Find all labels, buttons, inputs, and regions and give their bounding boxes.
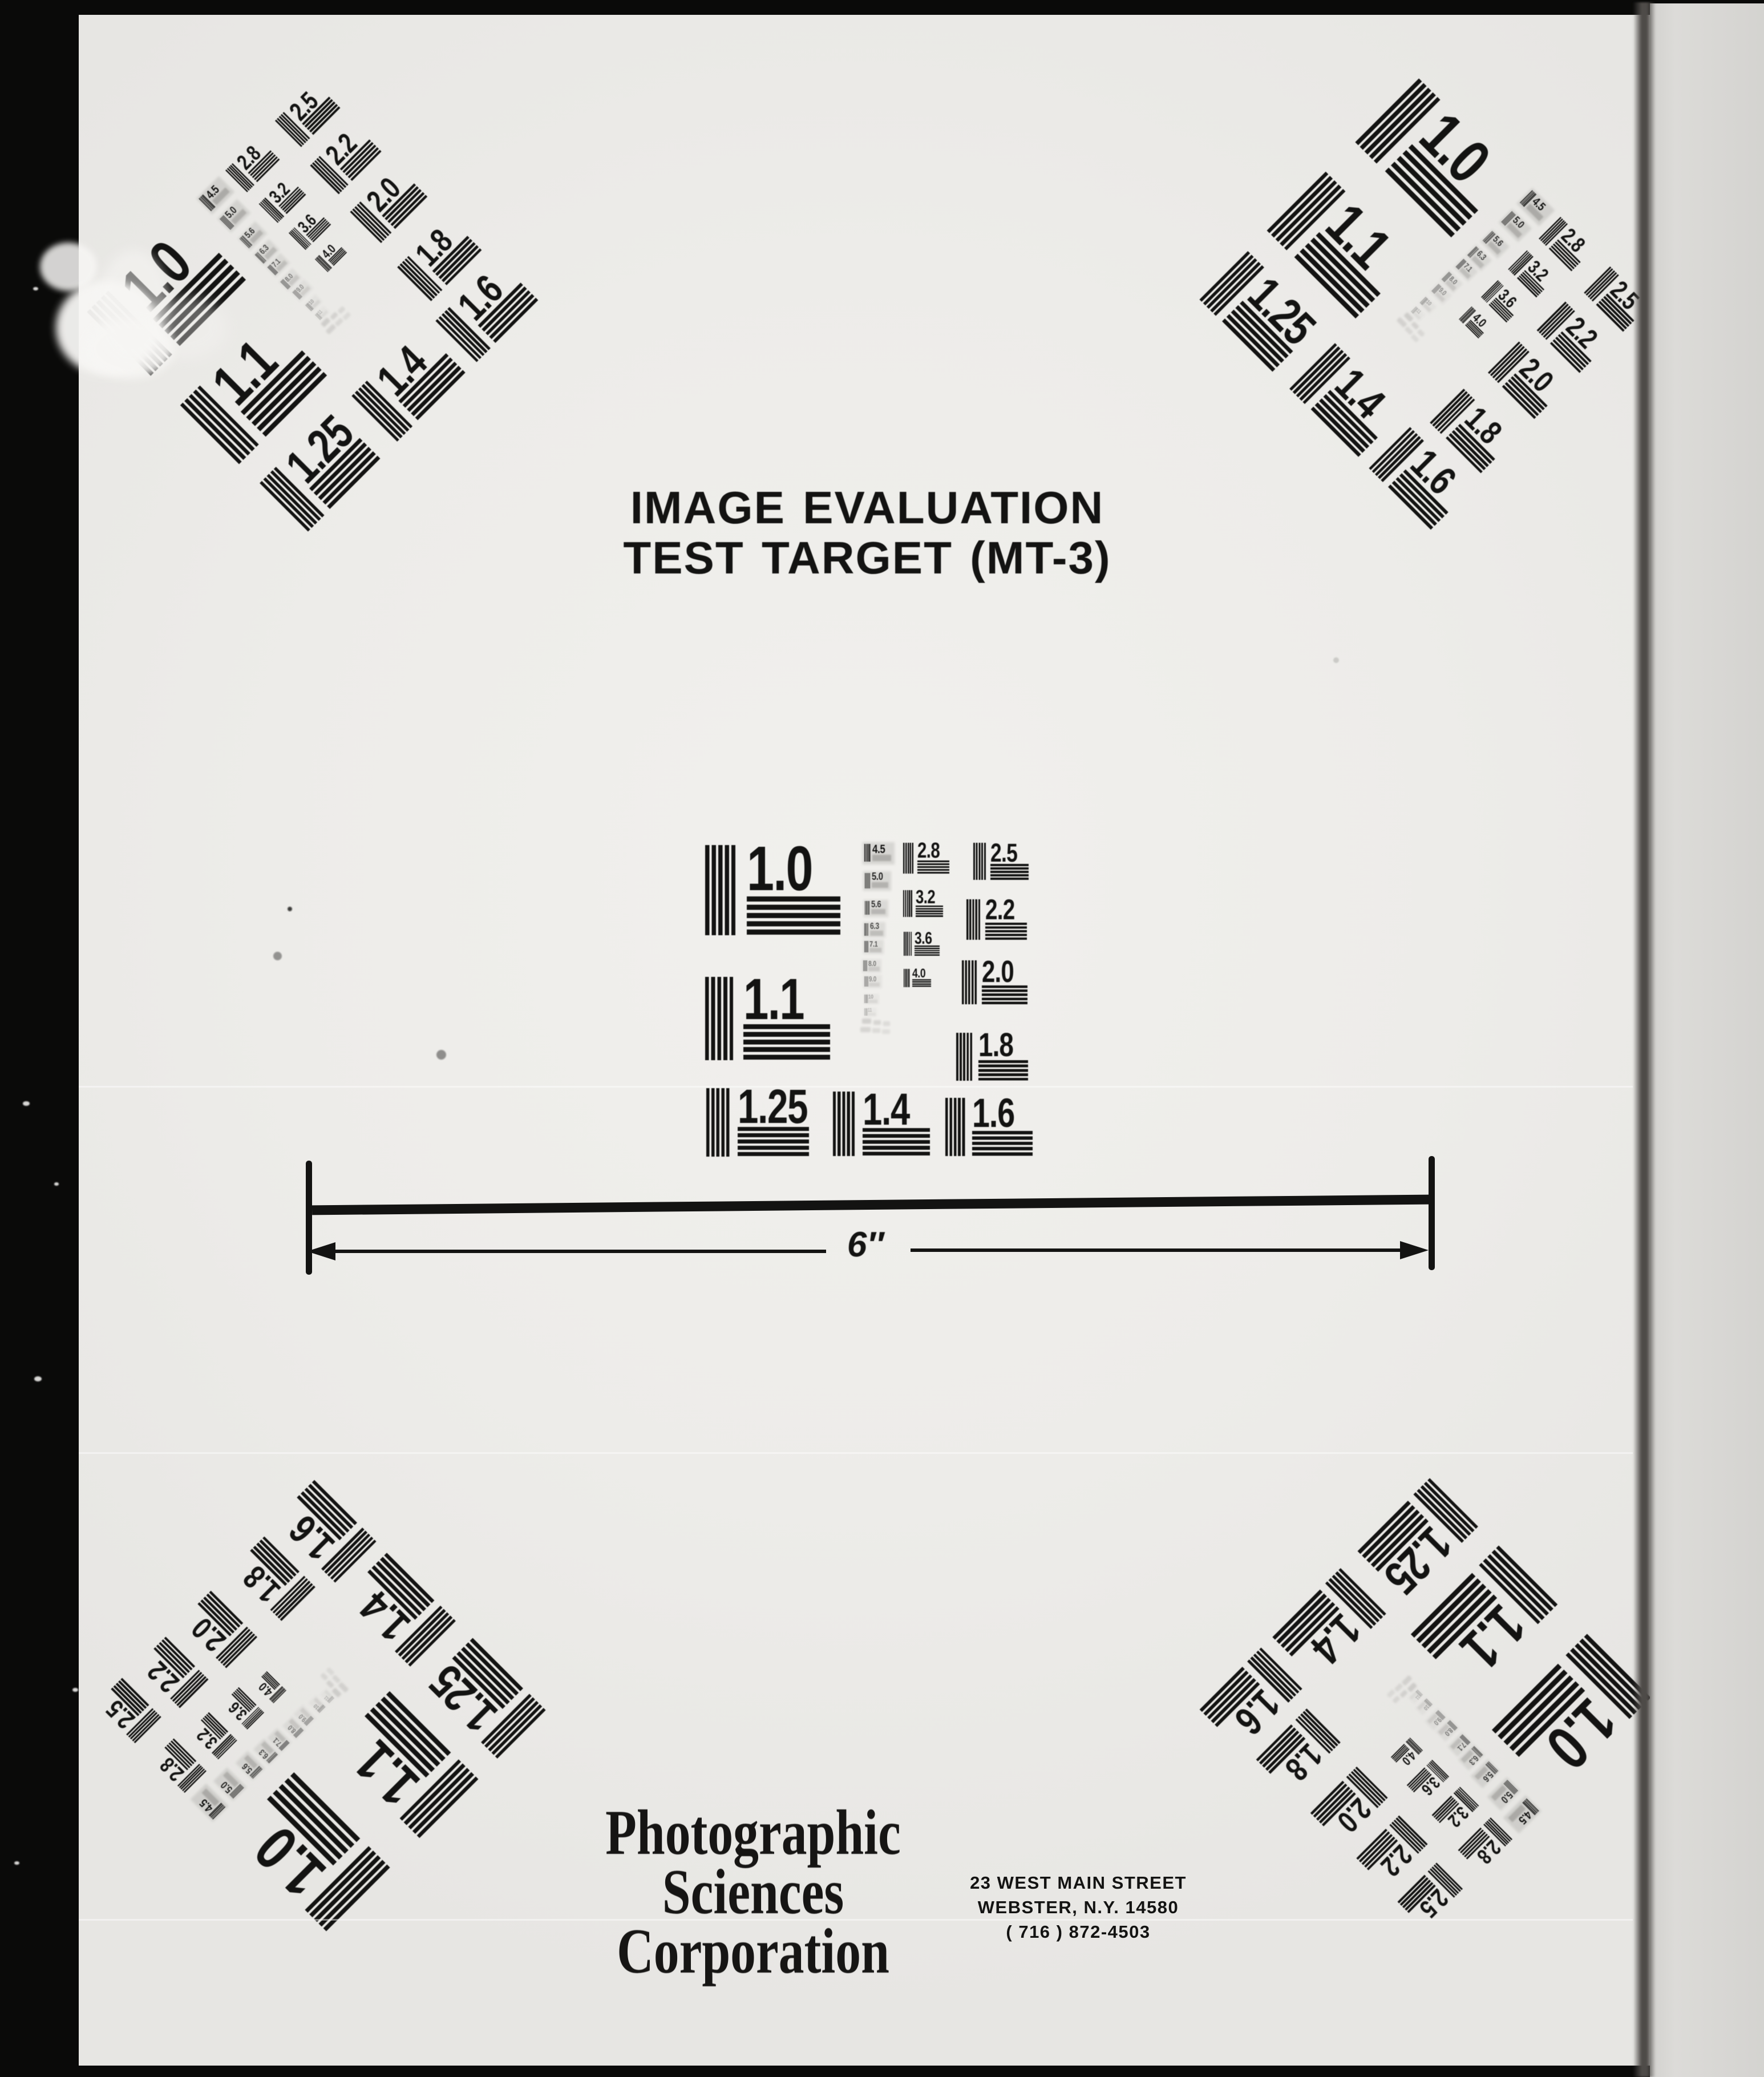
horizontal-bars [972,1131,1033,1156]
vertical-bars [962,960,977,1004]
illegible-smudge [338,306,346,314]
vertical-bars [864,995,868,1003]
adjacent-page-band [1650,3,1764,2077]
right-arrowhead-icon [1400,1241,1429,1259]
horizontal-bars [872,855,891,862]
company-line-1: Photographic [548,1803,958,1862]
bar-target-label: 3.2 [916,888,935,907]
scale-bar-arrow-line-right [911,1248,1408,1252]
dust-speck [273,952,282,960]
illegible-smudge [873,1020,881,1025]
bar-target-label: 1.8 [978,1029,1013,1062]
dust-speck [288,907,292,911]
scanned-microfilm-page: 1.01.11.251.41.61.82.02.22.52.83.23.64.0… [0,0,1764,2077]
horizontal-bars [743,1024,830,1060]
illegible-smudge [338,1682,349,1693]
illegible-smudge [330,312,338,320]
film-edge-top [0,0,1764,15]
illegible-smudge [326,1667,335,1676]
scan-streak [79,1086,1633,1088]
bar-target-label: 1.1 [743,970,804,1028]
bar-target-label: 2.2 [985,896,1015,924]
left-arrowhead-icon [307,1242,335,1260]
illegible-smudge [1405,326,1414,336]
horizontal-bars [868,1000,877,1003]
film-edge-speck [72,1688,78,1692]
horizontal-bars [917,860,949,874]
bar-target-label: 2.5 [990,840,1017,866]
horizontal-bars [915,945,940,956]
illegible-smudge [325,324,336,334]
illegible-smudge [335,318,344,327]
illegible-smudge [872,1028,880,1033]
vertical-bars [864,844,871,862]
bar-target-label: 11 [868,1008,872,1013]
film-edge-speck [54,1182,59,1186]
vertical-bars [966,899,980,940]
vertical-bars [865,901,869,915]
horizontal-bars [870,931,883,935]
vertical-bars [864,976,868,987]
bar-target-label: 1.6 [972,1093,1014,1134]
address-line-1: 23 WEST MAIN STREET [941,1870,1215,1895]
horizontal-bars [738,1127,809,1156]
vertical-bars [864,923,868,936]
horizontal-bars [869,948,881,952]
bar-target-label: 6.3 [870,922,879,931]
dust-speck [1333,657,1339,663]
horizontal-bars [868,967,880,971]
scale-bar-right-tick [1429,1156,1435,1270]
film-edge-speck [34,1376,42,1381]
horizontal-bars [916,906,944,917]
vertical-bars [904,932,912,956]
bar-target-label: 2.0 [982,957,1014,988]
horizontal-bars [982,985,1027,1004]
horizontal-bars [871,909,885,914]
vertical-bars [903,843,913,874]
page-separation-line [1633,2,1656,2077]
illegible-smudge [883,1021,890,1026]
horizontal-bars [990,864,1029,880]
company-line-3: Corporation [548,1922,958,1981]
illegible-smudge [1392,1696,1400,1704]
illegible-smudge [1410,334,1419,343]
horizontal-bars [863,1128,930,1155]
vertical-bars [945,1098,965,1156]
illegible-smudge [882,1029,890,1034]
bar-target-label: 7.1 [869,940,878,948]
horizontal-bars [869,983,880,987]
bar-target-label: 4.0 [912,967,925,980]
horizontal-bars [872,882,888,888]
bar-target-label: 4.5 [872,843,885,855]
bar-target-label: 5.6 [871,900,881,910]
bar-target-label: 9.0 [869,976,876,983]
vertical-bars [973,843,986,880]
scan-streak [79,1452,1633,1454]
vertical-bars [903,890,912,917]
bar-target-label: 2.8 [917,841,940,862]
bar-target-label: 10 [868,994,873,1000]
horizontal-bars [978,1060,1028,1081]
company-address: 23 WEST MAIN STREET WEBSTER, N.Y. 14580 … [941,1870,1215,1944]
illegible-smudge [862,1019,871,1024]
bar-target-label: 1.4 [863,1086,909,1132]
vertical-bars [706,1088,730,1157]
bar-target-label: 5.0 [872,872,883,883]
bar-target-label: 8.0 [868,960,876,967]
test-pattern-center: 1.01.11.251.41.61.82.02.22.52.83.23.64.0… [701,841,1036,1160]
horizontal-bars [912,979,931,987]
bar-target-label: 3.6 [915,930,932,947]
illegible-smudge [332,1675,341,1684]
illegible-smudge [1386,1689,1395,1698]
illegible-smudge [1397,317,1407,328]
illegible-smudge [1394,1683,1403,1692]
horizontal-bars [868,1013,876,1016]
vertical-bars [705,845,735,935]
illegible-smudge [860,1027,871,1032]
address-line-3: ( 716 ) 872-4503 [941,1920,1215,1944]
bar-target-label: 1.0 [747,838,812,901]
emulsion-damage-blob [141,297,227,359]
bar-target-label: 1.25 [738,1082,807,1130]
illegible-smudge [1417,329,1425,337]
illegible-smudge [320,1672,328,1680]
vertical-bars [833,1092,855,1156]
vertical-bars [863,960,867,971]
page-title: IMAGE EVALUATION TEST TARGET (MT-3) [582,483,1152,583]
address-line-2: WEBSTER, N.Y. 14580 [941,1895,1215,1920]
illegible-smudge [326,1680,334,1688]
vertical-bars [865,873,870,888]
illegible-smudge [1411,321,1419,330]
scale-bar-length-label: 6″ [834,1225,897,1265]
horizontal-bars [985,923,1027,940]
company-line-2: Sciences [548,1862,958,1922]
scale-bar-arrow-line-left [329,1250,826,1253]
dust-speck [436,1050,446,1060]
title-line-2: TEST TARGET (MT-3) [582,533,1152,583]
vertical-bars [705,977,733,1060]
company-name: Photographic Sciences Corporation [548,1803,958,1981]
film-edge-bottom [0,2066,1658,2077]
vertical-bars [956,1033,972,1081]
title-line-1: IMAGE EVALUATION [582,483,1152,533]
illegible-smudge [342,312,351,321]
vertical-bars [864,941,868,952]
illegible-smudge [1399,1690,1408,1698]
horizontal-bars [747,896,840,935]
vertical-bars [904,969,910,987]
scan-streak [79,1919,1633,1921]
